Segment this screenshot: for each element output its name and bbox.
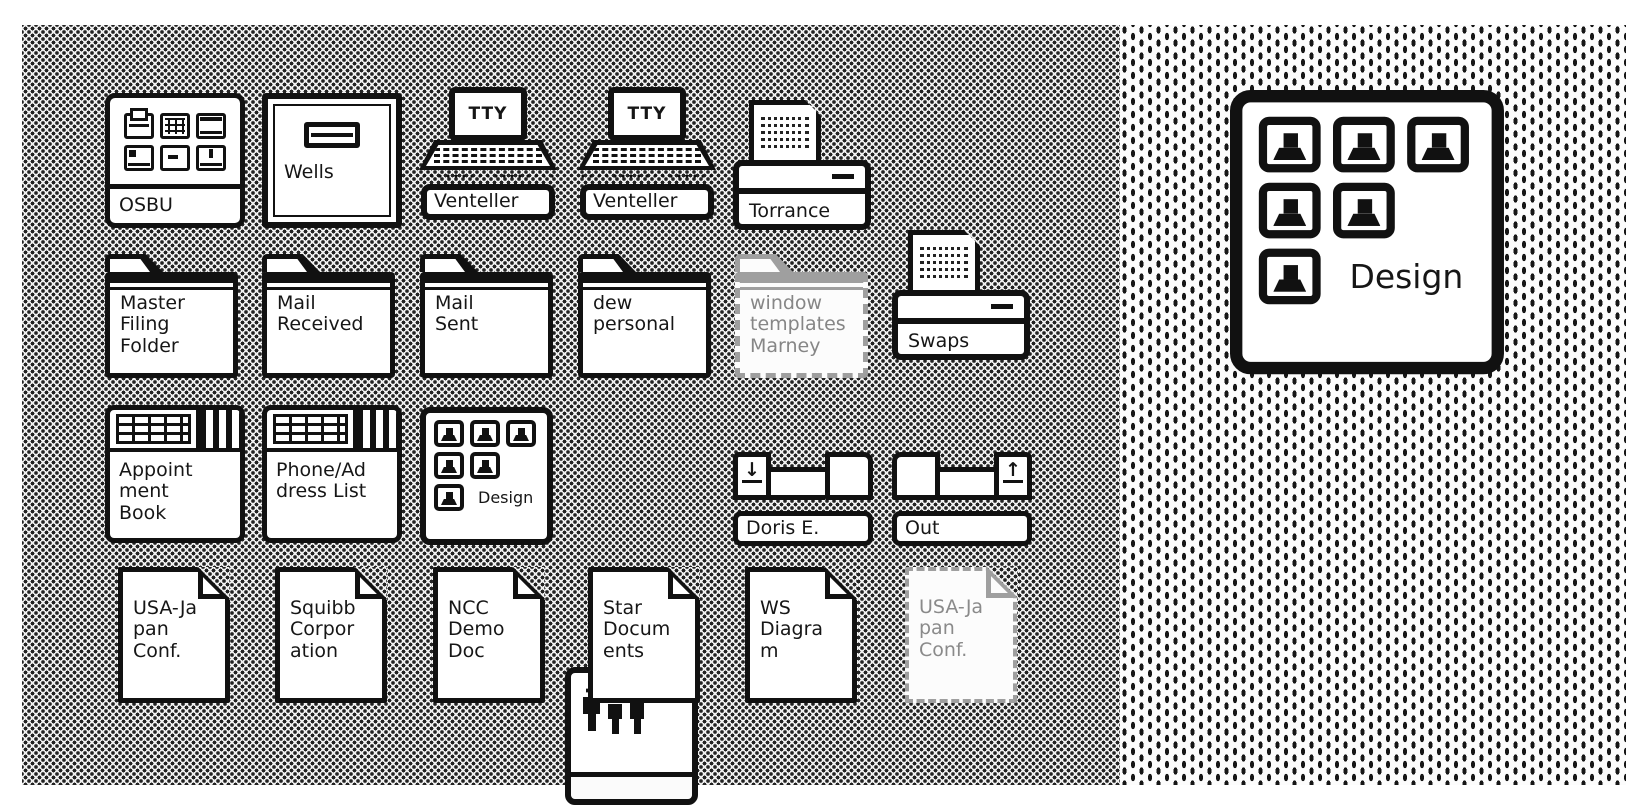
empty-label-strip <box>571 772 692 799</box>
printer-body: Swaps <box>892 290 1030 360</box>
folder-icon-master-filing[interactable]: Master Filing Folder <box>105 272 238 378</box>
book-header <box>267 410 397 452</box>
document-icon-usa-japan-conf-ghost[interactable]: USA-Ja pan Conf. <box>905 567 1017 703</box>
icon-label: Venteller <box>593 191 677 212</box>
mini-box-icon <box>160 145 190 171</box>
icon-label: NCC Demo Doc <box>448 598 536 662</box>
file-drawer-icon-wells[interactable]: Wells <box>262 93 402 228</box>
folder-icon-window-templates-marney-ghost[interactable]: window templates Marney <box>735 272 868 378</box>
person-badge-icon <box>1259 117 1321 173</box>
tray-end <box>825 452 873 500</box>
calendar-grid-icon <box>116 414 191 444</box>
icon-label: Wells <box>284 162 334 183</box>
screen: OSBU Wells TTY Venteller TTY Venteller <box>0 0 1634 808</box>
out-tray-icon-out[interactable]: ↑ Out <box>892 450 1032 546</box>
terminal-icon-venteller-2[interactable]: TTY Venteller <box>577 87 717 231</box>
folder-icon-mail-received[interactable]: Mail Received <box>262 272 395 378</box>
badge-row <box>1259 183 1492 239</box>
document-icon-ws-diagram[interactable]: WS Diagra m <box>745 567 857 703</box>
icon-label: Star Docum ents <box>603 598 691 662</box>
icon-label: Venteller <box>434 191 518 212</box>
book-box: Phone/Ad dress List <box>262 405 402 543</box>
book-box: Appoint ment Book <box>105 405 245 543</box>
terminal-screen: TTY <box>449 87 527 141</box>
drawer-handle-icon <box>304 122 360 148</box>
document-icon-ncc-demo-doc[interactable]: NCC Demo Doc <box>433 567 545 703</box>
icon-label: Torrance <box>749 201 830 222</box>
slot-dash <box>991 304 1013 309</box>
label-band: OSBU <box>110 184 240 223</box>
printer-body: Torrance <box>733 160 871 230</box>
person-badge-icon <box>434 420 464 447</box>
keyboard-icon <box>419 140 557 170</box>
group-box: OSBU <box>105 93 245 228</box>
mini-box-icon <box>124 145 154 171</box>
person-badge-icon <box>1333 183 1395 239</box>
document-icon-star-documents[interactable]: Star Docum ents <box>588 567 700 703</box>
drawer-box: Wells <box>262 93 402 228</box>
icon-label: Mail Sent <box>435 293 542 336</box>
person-badge-icon <box>1259 249 1321 305</box>
paper-slot <box>739 166 865 188</box>
icon-label: Design <box>478 489 533 507</box>
label-box: Doris E. <box>733 511 873 546</box>
keyboard-icon <box>578 140 716 170</box>
book-icon-phone-address-list[interactable]: Phone/Ad dress List <box>262 405 402 543</box>
tray-shape: ↑ <box>892 450 1032 500</box>
label-box: Out <box>892 511 1032 546</box>
tray-well <box>771 467 825 500</box>
out-arrow-icon: ↑ <box>994 452 1032 500</box>
binding-stripes-icon <box>353 410 397 448</box>
icon-label: Swaps <box>908 331 969 352</box>
badge-row <box>434 420 547 447</box>
icon-label: Squibb Corpor ation <box>290 598 378 662</box>
folder-icon-mail-sent[interactable]: Mail Sent <box>420 272 553 378</box>
icon-label: USA-Ja pan Conf. <box>133 598 221 662</box>
slot-dash <box>832 174 854 179</box>
person-badge-icon <box>1259 183 1321 239</box>
team-directory-icon-design[interactable]: Design <box>420 407 553 545</box>
terminal-screen: TTY <box>608 87 686 141</box>
label-box: Venteller <box>421 184 555 220</box>
dotted-base <box>420 172 556 180</box>
icon-label: Doris E. <box>746 518 819 539</box>
person-badge-icon <box>434 452 464 479</box>
icon-label: window templates Marney <box>750 293 857 357</box>
icon-label: WS Diagra m <box>760 598 848 662</box>
paper-slot <box>898 296 1024 318</box>
tray-end <box>892 452 940 500</box>
icon-label: OSBU <box>119 195 173 216</box>
printer-icon-swaps[interactable]: Swaps <box>892 230 1032 360</box>
label-band: Swaps <box>898 318 1024 360</box>
in-tray-icon-doris-e[interactable]: ↓ Doris E. <box>733 450 873 546</box>
tray-well <box>940 467 994 500</box>
screen-text: TTY <box>469 104 508 124</box>
icon-label: Mail Received <box>277 293 384 336</box>
person-badge-icon <box>470 420 500 447</box>
person-badge-icon <box>470 452 500 479</box>
icon-label: Appoint ment Book <box>110 452 240 524</box>
icon-label: Design <box>1349 258 1463 295</box>
mini-tray-icon <box>196 113 226 139</box>
icon-label: Out <box>905 518 939 539</box>
badge-row <box>434 452 547 479</box>
icon-label: USA-Ja pan Conf. <box>919 597 1009 661</box>
badge-row: Design <box>434 484 547 511</box>
document-icon-usa-japan-conf[interactable]: USA-Ja pan Conf. <box>118 567 230 703</box>
calendar-grid-icon <box>273 414 348 444</box>
person-badge-icon <box>1333 117 1395 173</box>
dotted-base <box>579 172 715 180</box>
person-badge-icon <box>434 484 464 511</box>
folder-icon-dew-personal[interactable]: dew personal <box>578 272 711 378</box>
drawer-inner: Wells <box>273 104 391 217</box>
workstation-group-icon-osbu[interactable]: OSBU <box>105 93 245 228</box>
person-badge-icon <box>1407 117 1469 173</box>
mini-calculator-icon <box>160 113 190 139</box>
team-directory-icon-design-large[interactable]: Design <box>1230 90 1504 374</box>
book-header <box>110 410 240 452</box>
device-thumbnails <box>110 98 240 184</box>
label-band: Torrance <box>739 188 865 230</box>
book-icon-appointment-book[interactable]: Appoint ment Book <box>105 405 245 543</box>
mini-printer-icon <box>124 113 154 139</box>
mini-box-icon <box>196 145 226 171</box>
arrow-glyph: ↓ <box>742 460 762 483</box>
label-box: Venteller <box>580 184 714 220</box>
document-icon-squibb-corporation[interactable]: Squibb Corpor ation <box>275 567 387 703</box>
arrow-glyph: ↑ <box>1003 460 1023 483</box>
screen-text: TTY <box>628 104 667 124</box>
badge-row: Design <box>1259 249 1492 305</box>
tray-shape: ↓ <box>733 450 873 500</box>
binding-stripes-icon <box>196 410 240 448</box>
icon-label: dew personal <box>593 293 700 336</box>
icon-label: Phone/Ad dress List <box>267 452 397 503</box>
printer-icon-torrance[interactable]: Torrance <box>733 100 873 230</box>
icon-label: Master Filing Folder <box>120 293 227 357</box>
badge-row <box>1259 117 1492 173</box>
in-arrow-icon: ↓ <box>733 452 771 500</box>
person-badge-icon <box>506 420 536 447</box>
terminal-icon-venteller-1[interactable]: TTY Venteller <box>418 87 558 231</box>
